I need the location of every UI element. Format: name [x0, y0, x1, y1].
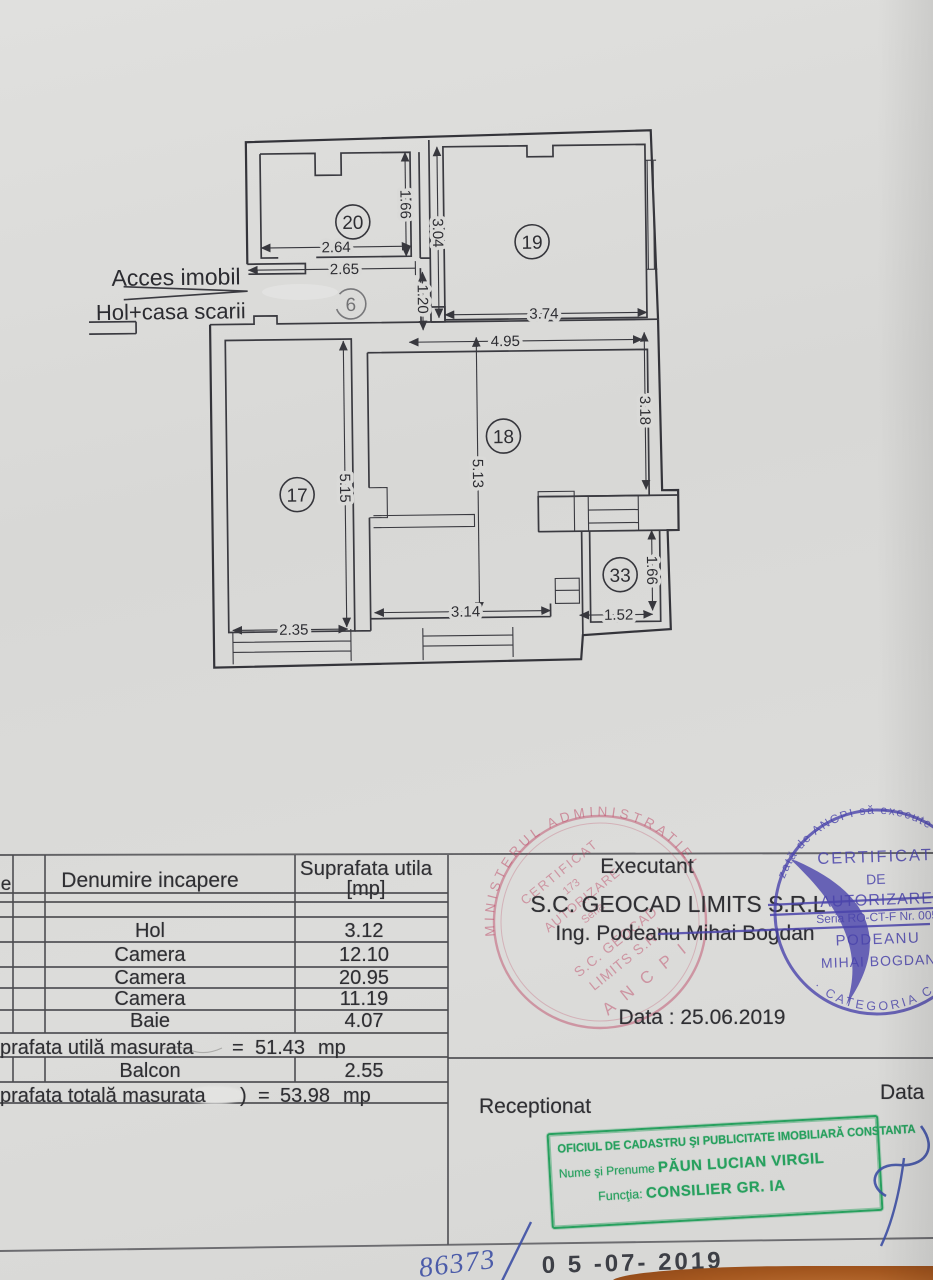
svg-text:· CATEGORIA C ·: · CATEGORIA C ·: [811, 974, 933, 1016]
blue-stamp-ring-top: zată de ANCPI să execute lucrări de: [0, 0, 933, 911]
scanned-cadastral-document: 2.64 2.65 1.66 3.04 1.20 3.74: [0, 0, 933, 1280]
svg-text:zată de ANCPI să execute lucră: zată de ANCPI să execute lucrări de: [0, 0, 933, 911]
blue-stamp-ring-bottom: · CATEGORIA C ·: [811, 974, 933, 1016]
ink-overlay: zată de ANCPI să execute lucrări de · CA…: [0, 0, 933, 1280]
handwritten-slash: [501, 1222, 531, 1280]
blue-stamp-text: CERTIFICAT: [817, 846, 933, 868]
signature-swoosh: [790, 856, 872, 1007]
reception-signature: [875, 1126, 929, 1246]
blue-stamp-text: DE: [866, 871, 886, 888]
blue-round-stamp: zată de ANCPI să execute lucrări de · CA…: [0, 0, 933, 1045]
handwritten-number: 86373: [417, 1244, 498, 1280]
blue-stamp-text: MIHAI BOGDAN: [821, 951, 933, 971]
